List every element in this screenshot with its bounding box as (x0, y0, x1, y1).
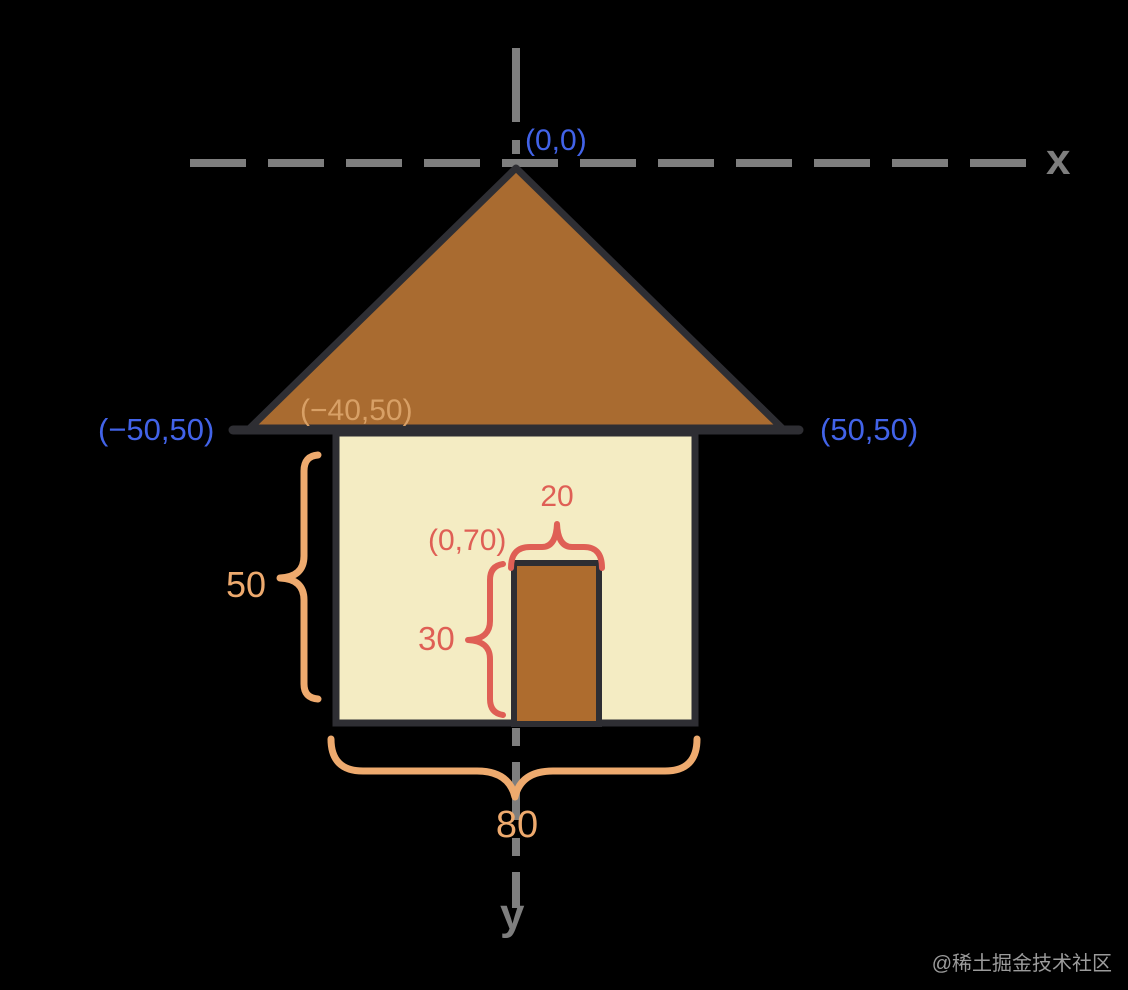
roof-base-left-coordinate-label: (−50,50) (98, 414, 214, 445)
door-height-dimension-label: 30 (418, 622, 455, 655)
door-width-dimension-label: 20 (540, 482, 573, 512)
origin-coordinate-label: (0,0) (525, 126, 587, 156)
wall-width-dimension-label: 80 (496, 806, 538, 844)
x-axis-label: x (1046, 138, 1070, 182)
door-top-left-coordinate-label: (0,70) (428, 526, 506, 556)
watermark-text: @稀土掘金技术社区 (932, 952, 1112, 976)
house-door (514, 563, 599, 724)
wall-height-dimension-label: 50 (226, 567, 266, 603)
roof-base-right-coordinate-label: (50,50) (820, 414, 918, 445)
wall-height-brace (280, 455, 318, 699)
house-roof-triangle (250, 168, 782, 428)
wall-top-left-coordinate-label: (−40,50) (300, 396, 413, 426)
y-axis-label: y (500, 893, 524, 937)
svg-coordinate-house-diagram: (0,0) (−50,50) (50,50) (−40,50) (0,70) 2… (0, 0, 1128, 990)
